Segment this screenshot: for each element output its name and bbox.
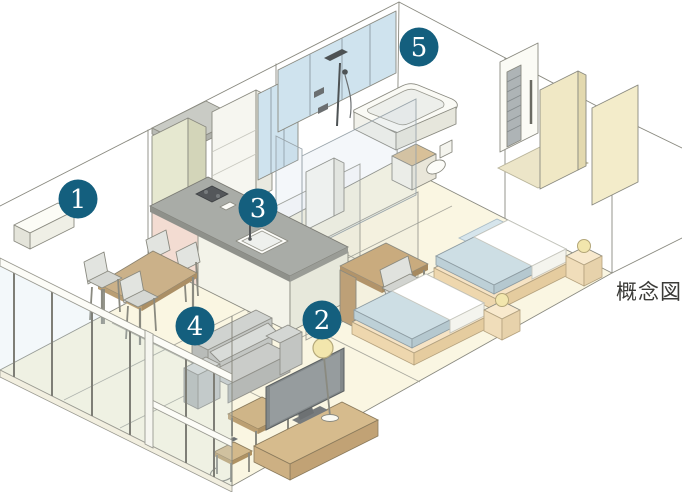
badge-number: 3 (250, 194, 267, 224)
closet-wall (592, 85, 638, 205)
badge-number: 2 (314, 306, 331, 336)
badge-5: 5 (400, 28, 439, 67)
badge-3: 3 (239, 189, 278, 228)
badge-number: 5 (411, 33, 428, 63)
badge-number: 1 (70, 185, 87, 215)
diagram-caption: 概念図 (616, 280, 682, 304)
concept-floorplan-page: 12345 概念図 (0, 0, 682, 492)
badge-2: 2 (303, 301, 342, 340)
nightstand-far (566, 240, 602, 287)
badge-number: 4 (187, 312, 204, 342)
entrance (498, 43, 638, 205)
entry-wall (540, 71, 578, 189)
table-lamp-far (578, 240, 591, 253)
window-corner-post (145, 330, 153, 448)
entry-door (500, 43, 538, 152)
table-lamp-near (496, 294, 509, 307)
lamp-shade (313, 338, 333, 358)
isometric-room-diagram: 12345 概念図 (0, 0, 682, 492)
badge-4: 4 (176, 307, 215, 346)
badge-1: 1 (59, 180, 98, 219)
